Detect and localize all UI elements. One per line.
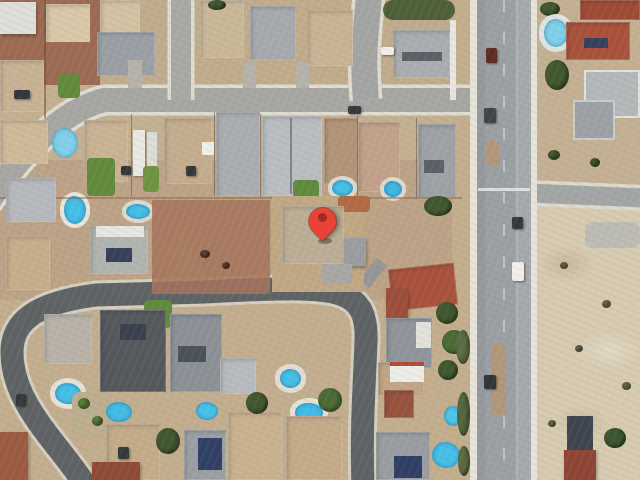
swimming-pool bbox=[126, 204, 150, 219]
tree bbox=[424, 196, 452, 216]
shrub bbox=[602, 300, 611, 308]
solar-panels bbox=[394, 456, 422, 478]
solar-panels bbox=[120, 324, 146, 340]
roof-ridge-line bbox=[290, 118, 292, 194]
driveway bbox=[322, 264, 352, 284]
shrub bbox=[92, 416, 103, 426]
car-on-road bbox=[512, 217, 523, 229]
median-strip-small bbox=[486, 140, 499, 166]
fence-line bbox=[260, 114, 261, 198]
house-roof bbox=[220, 358, 256, 394]
lawn bbox=[143, 166, 159, 192]
landscaped-yard bbox=[72, 392, 110, 438]
tree bbox=[545, 60, 569, 90]
dark-shrub bbox=[604, 428, 626, 448]
house-roof bbox=[307, 10, 353, 66]
swimming-pool bbox=[280, 369, 301, 388]
swimming-pool bbox=[384, 181, 402, 197]
house-roof bbox=[100, 310, 166, 392]
block-wall bbox=[0, 197, 462, 199]
house-roof bbox=[97, 32, 155, 76]
lawn bbox=[87, 158, 115, 196]
house-roof bbox=[0, 120, 48, 164]
shrub bbox=[456, 330, 470, 364]
car-on-road bbox=[484, 108, 496, 123]
house-roof bbox=[228, 412, 282, 480]
stop-bar bbox=[478, 188, 530, 191]
tree bbox=[246, 392, 268, 414]
shrub bbox=[622, 382, 631, 390]
solar-panels bbox=[106, 248, 132, 262]
roof-panels bbox=[424, 160, 444, 173]
red-tile-roof bbox=[0, 432, 28, 480]
location-pin-dot bbox=[318, 213, 327, 222]
solar-panels bbox=[198, 438, 222, 470]
red-roof-building bbox=[564, 450, 596, 480]
red-tile-roof bbox=[92, 462, 140, 480]
swimming-pool bbox=[52, 128, 78, 158]
gravel-patch bbox=[585, 222, 640, 248]
arterial-left-curb bbox=[470, 0, 477, 480]
car-on-road bbox=[348, 106, 361, 114]
parked-car bbox=[121, 166, 131, 175]
shrub bbox=[458, 446, 470, 476]
house-roof bbox=[286, 416, 342, 480]
fence-line bbox=[131, 114, 132, 196]
driveway-stub bbox=[364, 262, 382, 284]
swimming-pool bbox=[544, 19, 568, 47]
shed-roof bbox=[344, 238, 366, 266]
fence-line bbox=[357, 116, 358, 196]
swimming-pool bbox=[332, 180, 353, 196]
wall-line bbox=[450, 20, 456, 100]
tree bbox=[436, 302, 458, 324]
tree bbox=[438, 360, 458, 380]
parked-rv bbox=[390, 362, 424, 382]
car-on-road bbox=[484, 375, 496, 389]
fence-line bbox=[214, 112, 215, 196]
east-side-road bbox=[528, 193, 640, 198]
driveway bbox=[128, 60, 142, 88]
red-tile-roof bbox=[384, 390, 414, 418]
house-roof bbox=[6, 178, 56, 222]
red-tile-roof bbox=[580, 0, 640, 20]
shrub bbox=[78, 398, 90, 409]
parked-car bbox=[186, 166, 196, 176]
house-roof bbox=[216, 112, 260, 196]
house-roof bbox=[6, 236, 50, 290]
house-roof bbox=[0, 2, 36, 34]
solar-panels bbox=[567, 416, 593, 450]
lawn bbox=[58, 74, 80, 98]
house-roof bbox=[573, 100, 615, 140]
parked-car bbox=[381, 47, 394, 55]
house-roof bbox=[44, 314, 92, 364]
tree bbox=[318, 388, 342, 412]
shrub bbox=[590, 158, 600, 167]
house-roof bbox=[250, 6, 296, 60]
shrub bbox=[575, 345, 583, 352]
tree bbox=[208, 0, 226, 10]
parked-car bbox=[16, 394, 26, 406]
swimming-pool bbox=[432, 442, 460, 468]
solar-panels bbox=[178, 346, 206, 362]
house-roof bbox=[46, 4, 90, 42]
upper-stub bbox=[364, 0, 369, 100]
debris bbox=[222, 262, 230, 269]
car-on-road bbox=[14, 90, 30, 99]
solar-panels bbox=[584, 38, 608, 48]
roof-panels bbox=[402, 52, 442, 61]
shrub bbox=[457, 392, 470, 436]
tree-canopy bbox=[383, 0, 455, 20]
dirt-lot bbox=[152, 200, 270, 294]
swimming-pool bbox=[64, 196, 86, 224]
tree bbox=[156, 428, 180, 454]
roof-white-section bbox=[416, 322, 431, 348]
parked-rv bbox=[202, 142, 214, 155]
driveway bbox=[296, 62, 309, 88]
fence-line bbox=[44, 0, 46, 118]
shrub bbox=[548, 420, 556, 427]
swimming-pool bbox=[196, 402, 218, 420]
shrub bbox=[548, 150, 560, 160]
fence-line bbox=[416, 118, 417, 198]
house-roof bbox=[324, 118, 358, 184]
house-roof bbox=[100, 0, 140, 34]
swimming-pool bbox=[106, 402, 132, 422]
map-canvas[interactable] bbox=[0, 0, 640, 480]
arterial-edge-line bbox=[517, 0, 518, 480]
red-tile-roof-wing bbox=[386, 288, 408, 320]
roof-white-section bbox=[96, 226, 144, 237]
car-on-road bbox=[486, 48, 497, 63]
driveway bbox=[243, 62, 256, 88]
debris bbox=[200, 250, 210, 258]
shrub bbox=[560, 262, 568, 269]
truck-on-road bbox=[512, 262, 524, 281]
house-roof bbox=[0, 60, 44, 112]
arterial-right-curb bbox=[531, 0, 537, 480]
parked-car bbox=[118, 447, 129, 459]
